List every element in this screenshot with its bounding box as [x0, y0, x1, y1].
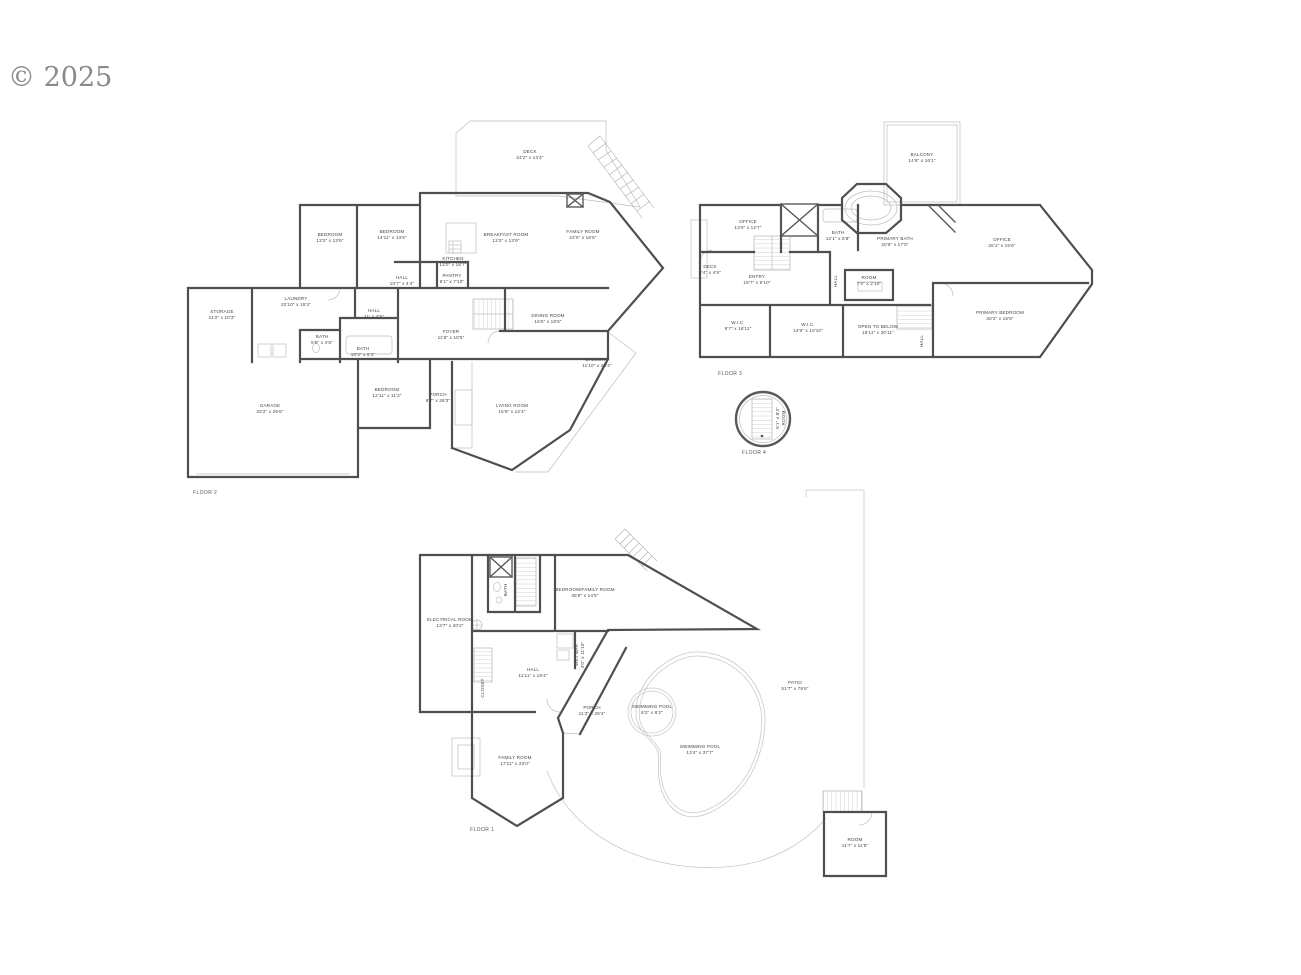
room-dims: 2'4" x 4'9" [699, 270, 721, 275]
room-label: BALCONY [910, 152, 933, 157]
pool-inner-outline [639, 656, 762, 813]
room-label: PANTRY [442, 273, 461, 278]
room-label: DECK [703, 264, 717, 269]
room-label: SWIMMING POOL [632, 704, 673, 709]
room-label: BREAKFAST ROOM [484, 232, 529, 237]
room-dims: 5'9" x 4'8" [311, 340, 333, 345]
room-dims: 35'8" x 14'5" [571, 593, 598, 598]
room-dims: 10'7" x 4'4" [390, 281, 415, 286]
room-dims: 30'2" x 15'8" [986, 316, 1013, 321]
room-label: ROOM [862, 275, 877, 280]
room-label: FAMILY ROOM [498, 755, 531, 760]
room-dims: 13'2" x 13'9" [492, 238, 519, 243]
room-dims: 9'7" x 16'11" [725, 326, 752, 331]
room-dims: 11'11" x 18'4" [518, 673, 547, 678]
room-label: PORCH [429, 392, 446, 397]
room-label: BEDROOM/FAMILY ROOM [555, 587, 614, 592]
room-dims: 10'3" x 6'1" [351, 352, 376, 357]
patio-boundary [806, 490, 864, 788]
room-label: OFFICE [739, 219, 757, 224]
door-arc [859, 812, 872, 825]
room-dims: 5'1" x 8'3" [775, 407, 780, 429]
room-dims: 14'8" x 16'1" [908, 158, 935, 163]
room-label: HALL [527, 667, 539, 672]
floor4-stairs [752, 399, 772, 439]
door-arc [547, 699, 560, 712]
room-dims: 13'2" x 13'6" [316, 238, 343, 243]
room-dims: 15'9" x 12'4" [498, 409, 525, 414]
dryer [273, 344, 286, 357]
room-label: W.I.C. [731, 320, 744, 325]
chimney-surround [452, 738, 480, 776]
room-dims: 8'2" x 8'2" [641, 710, 663, 715]
room-dims: 11'6" x 10'5" [438, 335, 465, 340]
room-dims: 13'4" x 37'7" [686, 750, 713, 755]
room-dims: 11' x 4'9" [364, 314, 384, 319]
room-label: DECK [523, 149, 537, 154]
room-label: PORCH [583, 705, 600, 710]
porch-chimney [455, 390, 472, 425]
wetbar-counter [557, 634, 573, 648]
floor3-label: FLOOR 3 [718, 371, 742, 377]
room-dims: 8'7" x 28'3" [426, 398, 451, 403]
floor2-label: FLOOR 2 [193, 490, 217, 496]
exterior-deck-stairs [615, 529, 657, 571]
floor3-plan: BALCONY 14'8" x 16'1" OFFICE 13'0" x 12'… [691, 122, 1092, 377]
balcony-outline [515, 333, 636, 472]
room-dims: 16'5" x 18'6" [534, 319, 561, 324]
floor-plan-image: © 2025 [0, 0, 1301, 975]
room-label: DINING ROOM [531, 313, 564, 318]
shower-box [490, 557, 512, 577]
copyright-watermark: © 2025 [8, 62, 112, 93]
room-label: LAUNDRY [285, 296, 308, 301]
floor2-thin-features [196, 121, 654, 474]
room-label: BEDROOM [318, 232, 343, 237]
floor2-plan: DECK 24'2" x 13'4" BEDROOM 13'2" x 13'6"… [188, 121, 663, 496]
room-label: PRIMARY BEDROOM [976, 310, 1024, 315]
skylight-box [781, 204, 818, 236]
sink [496, 597, 502, 603]
room-label: PRIMARY BATH [877, 236, 913, 241]
toilet [494, 583, 501, 592]
room-dims: 11'2" x 10'3" [209, 315, 236, 320]
room-dims: 14'8" x 10'10" [793, 328, 823, 333]
room-dims: 14'11" x 13'6" [377, 235, 407, 240]
room-dims: 4'0" x 11'10" [580, 641, 585, 668]
floor1-thin-features [452, 490, 872, 868]
deck-stairs [588, 136, 654, 218]
stair-marker [761, 435, 764, 438]
room-dims: 24'2" x 13'4" [516, 155, 543, 160]
room-dims: 12'11" x 11'2" [372, 393, 401, 398]
room-label: BEDROOM [380, 229, 405, 234]
room-label: BATH [832, 230, 845, 235]
room-dims: 11'2" x 29'4" [579, 711, 606, 716]
closet-stairs [516, 558, 536, 606]
room-label: PATIO [788, 680, 802, 685]
room-label: CLOSET [480, 678, 485, 697]
room-label: ROOM [781, 411, 786, 426]
door-arc [328, 288, 340, 300]
door-arc [940, 283, 953, 296]
room-dims: 17'11" x 23'0" [500, 761, 530, 766]
room-label: FOYER [443, 329, 460, 334]
room-dims: 12'1" x 6'8" [826, 236, 851, 241]
room-label: WET BAR [574, 644, 579, 666]
room-label: KITCHEN [442, 256, 463, 261]
room-label: ENTRY [749, 274, 765, 279]
room-label: HALL [368, 308, 380, 313]
room-dims: 26'1" x 15'6" [988, 243, 1015, 248]
room-label: BATH [503, 584, 508, 597]
room-label: BEDROOM [375, 387, 400, 392]
hall-stairs [897, 305, 932, 329]
room-dims: 13'7" x 20'2" [436, 623, 463, 628]
vent-box [567, 194, 583, 207]
room-label: OFFICE [993, 237, 1011, 242]
floor4-label: FLOOR 4 [742, 450, 766, 456]
room-dims: 6'1" x 7'10" [440, 279, 465, 284]
room-label: HALL [919, 335, 924, 347]
corner-shower [928, 205, 955, 232]
room-label: ROOM [848, 837, 863, 842]
room-label: SWIMMING POOL [680, 744, 721, 749]
room-label: BALCONY [585, 357, 608, 362]
floor1-label: FLOOR 1 [470, 827, 494, 833]
room-label: GARAGE [260, 403, 281, 408]
room-label: LIVING ROOM [496, 403, 528, 408]
room-dims: 51'7" x 79'6" [781, 686, 808, 691]
room-dims: 7'0" x 2'10" [857, 281, 882, 286]
room-label: FAMILY ROOM [566, 229, 599, 234]
room-dims: 19'11" x 30'11" [862, 330, 894, 335]
washer [258, 344, 271, 357]
room-label: BATH [316, 334, 329, 339]
room-label: HALL [396, 275, 408, 280]
room-dims: 11'10" x 28'4" [582, 363, 612, 368]
pool-room-stairs [823, 791, 862, 812]
room-dims: 18'7" x 9'10" [743, 280, 770, 285]
room-label: W.I.C. [801, 322, 814, 327]
room-dims: 13'0" x 12'7" [734, 225, 761, 230]
floor1-stairs [474, 648, 492, 682]
room-dims: 22'0" x 16'5" [569, 235, 596, 240]
room-label: STORAGE [210, 309, 233, 314]
room-label: ELECTRICAL ROOM [427, 617, 473, 622]
room-dims: 13'0" x 18'7" [439, 262, 466, 267]
room-label: OPEN TO BELOW [858, 324, 899, 329]
door-arc [488, 331, 500, 343]
room-dims: 22'10" x 15'3" [281, 302, 311, 307]
kitchen-cooktop [449, 241, 461, 253]
patio-curve [547, 771, 826, 868]
floor4-plan: 5'1" x 8'3" ROOM FLOOR 4 [736, 392, 790, 456]
floor1-plan: ELECTRICAL ROOM 13'7" x 20'2" BEDROOM/FA… [420, 490, 886, 876]
room-dims: 33'2" x 26'6" [256, 409, 283, 414]
room-dims: 20'5" x 17'0" [881, 242, 908, 247]
room-dims: 11'7" x 11'5" [842, 843, 869, 848]
room-label: BATH [357, 346, 370, 351]
room-label: HALL [833, 275, 838, 287]
